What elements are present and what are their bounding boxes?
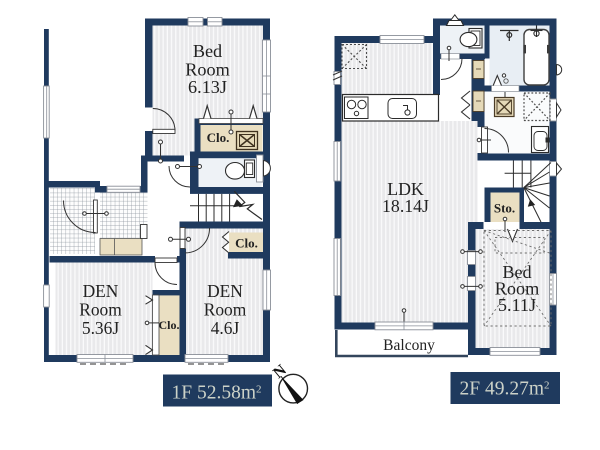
svg-text:5.11J: 5.11J [498,295,536,315]
svg-text:2F 49.27m2: 2F 49.27m2 [459,379,549,400]
svg-text:Bed: Bed [193,41,222,61]
svg-text:Balcony: Balcony [383,337,435,354]
svg-text:5.36J: 5.36J [82,318,119,338]
svg-text:DEN: DEN [207,281,243,301]
svg-text:Clo.: Clo. [207,130,230,145]
svg-text:Sto.: Sto. [494,201,515,216]
svg-text:Clo.: Clo. [235,236,258,251]
svg-text:6.13J: 6.13J [188,77,227,97]
svg-text:Room: Room [79,300,122,320]
svg-text:4.6J: 4.6J [211,318,240,338]
svg-text:18.14J: 18.14J [382,196,429,216]
svg-text:1F 52.58m2: 1F 52.58m2 [171,383,261,404]
svg-text:Room: Room [204,300,247,320]
svg-text:Clo.: Clo. [159,318,180,332]
svg-text:DEN: DEN [83,281,119,301]
